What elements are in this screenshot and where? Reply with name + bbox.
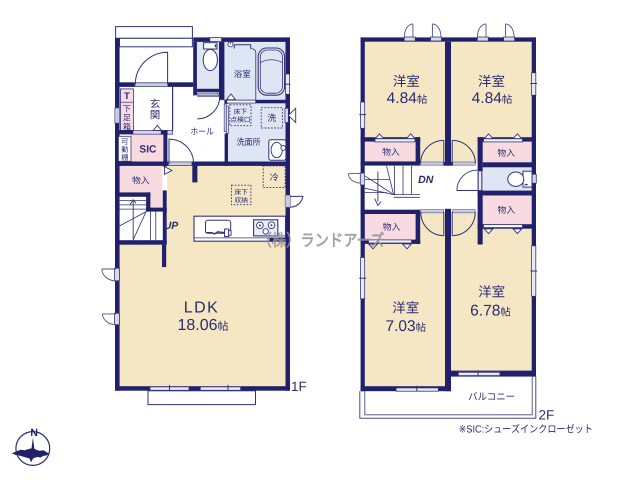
- svg-text:洋室: 洋室: [393, 74, 420, 89]
- svg-text:物入: 物入: [497, 148, 515, 158]
- svg-text:冷: 冷: [270, 173, 279, 183]
- svg-text:物入: 物入: [497, 205, 515, 215]
- svg-text:洗面所: 洗面所: [237, 137, 261, 147]
- svg-text:足: 足: [123, 114, 131, 123]
- svg-text:物入: 物入: [132, 176, 150, 186]
- svg-text:1F: 1F: [291, 379, 307, 394]
- svg-text:バルコニー: バルコニー: [468, 391, 515, 403]
- svg-text:下: 下: [123, 105, 131, 114]
- svg-text:T: T: [124, 91, 130, 102]
- svg-text:N: N: [30, 427, 38, 439]
- svg-text:2F: 2F: [539, 408, 555, 423]
- svg-text:床下: 床下: [234, 189, 248, 197]
- svg-text:LDK: LDK: [184, 299, 220, 316]
- svg-text:棚: 棚: [121, 153, 128, 162]
- svg-text:DN: DN: [418, 174, 434, 186]
- svg-text:浴室: 浴室: [234, 69, 252, 79]
- svg-text:（株）ランドアーズ: （株）ランドアーズ: [258, 231, 385, 250]
- svg-text:※SIC:シューズインクローゼット: ※SIC:シューズインクローゼット: [459, 423, 593, 435]
- svg-text:点検口: 点検口: [230, 116, 250, 124]
- svg-text:床下: 床下: [234, 108, 248, 116]
- svg-text:ホール: ホール: [190, 127, 214, 137]
- svg-text:物入: 物入: [382, 147, 400, 157]
- svg-text:洋室: 洋室: [392, 300, 419, 315]
- svg-text:収納: 収納: [234, 196, 248, 204]
- svg-text:SIC: SIC: [139, 143, 156, 155]
- svg-text:物入: 物入: [383, 222, 401, 232]
- svg-text:関: 関: [150, 110, 161, 122]
- svg-text:洗: 洗: [267, 113, 276, 123]
- svg-text:洋室: 洋室: [478, 74, 505, 89]
- svg-text:箱: 箱: [123, 123, 131, 132]
- svg-text:洋室: 洋室: [478, 284, 505, 299]
- svg-text:UP: UP: [164, 220, 180, 232]
